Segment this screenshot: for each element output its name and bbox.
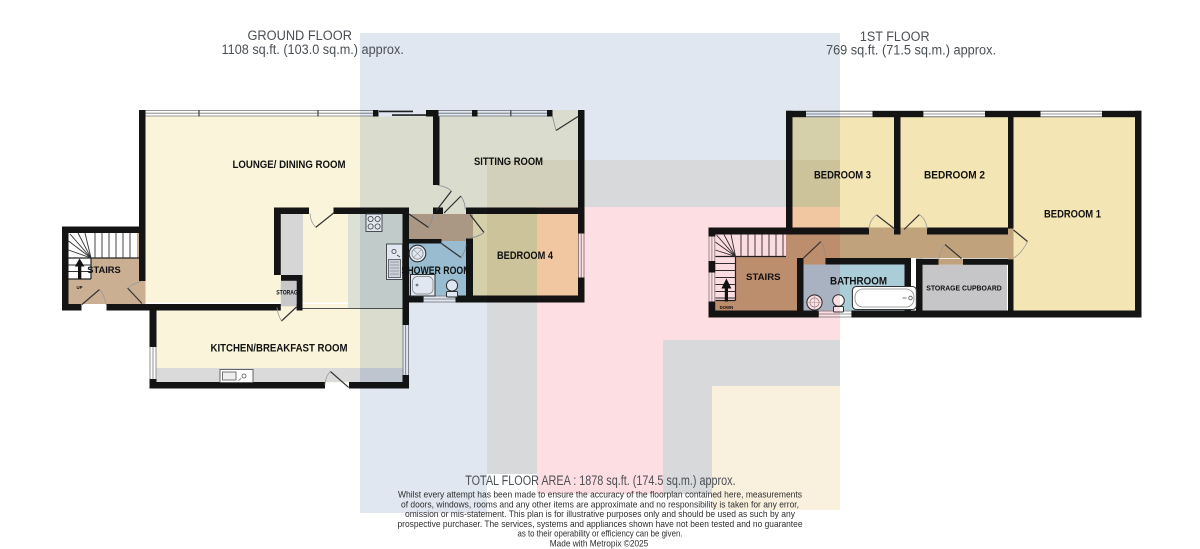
svg-text:as to their operability or eff: as to their operability or efficiency ca…	[518, 529, 683, 539]
svg-text:omission or mis-statement. Thi: omission or mis-statement. This plan is …	[405, 509, 795, 519]
svg-text:1108 sq.ft. (103.0 sq.m.) appr: 1108 sq.ft. (103.0 sq.m.) approx.	[222, 42, 404, 57]
svg-text:KITCHEN/BREAKFAST ROOM: KITCHEN/BREAKFAST ROOM	[211, 343, 348, 355]
svg-text:STAIRS: STAIRS	[87, 265, 121, 276]
svg-text:BEDROOM 1: BEDROOM 1	[1044, 209, 1101, 221]
svg-text:Made with Metropix ©2025: Made with Metropix ©2025	[550, 539, 649, 549]
svg-text:BEDROOM 2: BEDROOM 2	[924, 170, 985, 182]
svg-text:STORAGE CUPBOARD: STORAGE CUPBOARD	[926, 284, 1002, 293]
svg-text:UP: UP	[77, 285, 83, 290]
svg-text:LOUNGE/ DINING ROOM: LOUNGE/ DINING ROOM	[233, 159, 346, 171]
svg-text:769 sq.ft. (71.5 sq.m.) approx: 769 sq.ft. (71.5 sq.m.) approx.	[826, 43, 996, 58]
svg-text:Whilst every attempt has been: Whilst every attempt has been made to en…	[398, 490, 802, 500]
svg-text:TOTAL FLOOR AREA : 1878 sq.ft.: TOTAL FLOOR AREA : 1878 sq.ft. (174.5 sq…	[465, 473, 735, 488]
svg-text:STORAGE: STORAGE	[276, 291, 301, 297]
svg-text:prospective purchaser. The ser: prospective purchaser. The services, sys…	[398, 519, 803, 529]
svg-text:GROUND FLOOR: GROUND FLOOR	[247, 28, 352, 43]
svg-text:of doors, windows, rooms and a: of doors, windows, rooms and any other i…	[401, 499, 799, 509]
